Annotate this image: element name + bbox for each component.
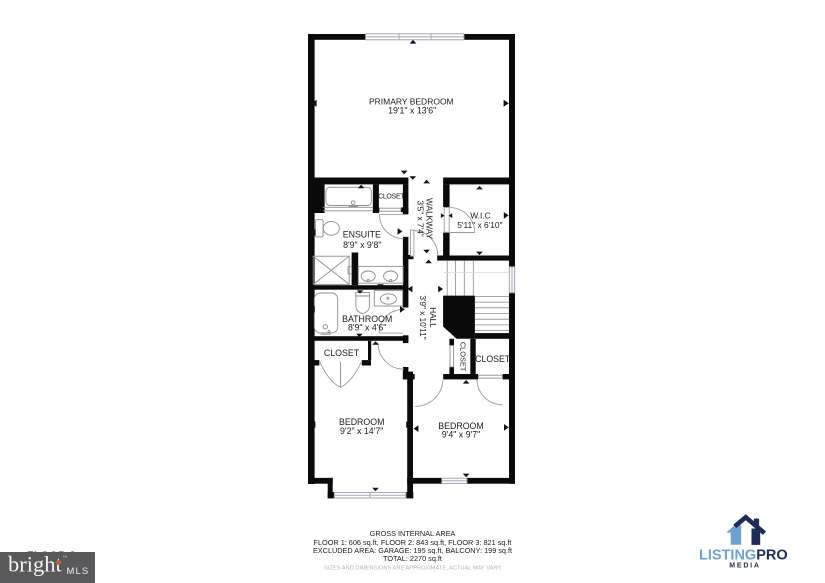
svg-text:HALL: HALL	[428, 307, 437, 328]
svg-text:MLS: MLS	[67, 566, 90, 577]
svg-text:™: ™	[63, 555, 68, 561]
svg-text:19'1" x 13'6": 19'1" x 13'6"	[388, 105, 436, 115]
svg-text:GROSS INTERNAL AREA: GROSS INTERNAL AREA	[370, 529, 456, 538]
svg-text:MEDIA: MEDIA	[729, 563, 761, 570]
svg-text:bright: bright	[8, 552, 62, 577]
svg-text:CLOSET: CLOSET	[475, 354, 511, 364]
svg-text:3'5" x 7'4": 3'5" x 7'4"	[415, 200, 425, 236]
svg-text:9'4" x 9'7": 9'4" x 9'7"	[442, 430, 480, 440]
svg-text:5'11" x 6'10": 5'11" x 6'10"	[457, 220, 502, 230]
svg-text:LISTINGPRO: LISTINGPRO	[699, 548, 788, 564]
svg-text:ENSUITE: ENSUITE	[343, 230, 381, 240]
svg-text:CLOSET: CLOSET	[324, 348, 360, 358]
svg-text:9'2" x 14'7": 9'2" x 14'7"	[340, 426, 383, 436]
svg-text:CLOSET: CLOSET	[378, 194, 405, 201]
svg-text:SIZES AND DIMENSIONS ARE APPRO: SIZES AND DIMENSIONS ARE APPROXIMATE, AC…	[324, 565, 502, 571]
svg-text:CLOSET: CLOSET	[458, 342, 467, 372]
svg-text:8'9" x 9'8": 8'9" x 9'8"	[343, 240, 381, 250]
svg-text:8'9" x 4'6": 8'9" x 4'6"	[348, 323, 386, 333]
svg-text:TOTAL: 2270 sq.ft: TOTAL: 2270 sq.ft	[383, 554, 442, 563]
svg-text:W.I.C: W.I.C	[470, 210, 490, 220]
svg-text:3'9" x 10'11": 3'9" x 10'11"	[418, 295, 427, 339]
